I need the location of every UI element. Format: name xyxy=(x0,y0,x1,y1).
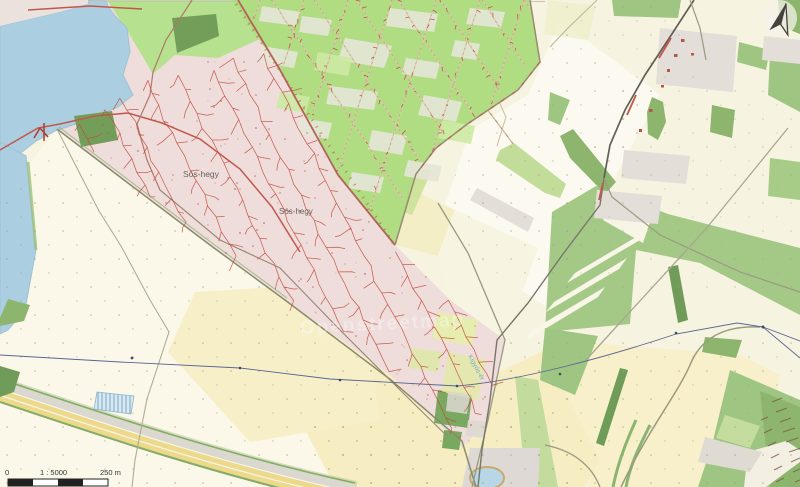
svg-text:Sós-hegy: Sós-hegy xyxy=(183,169,220,179)
svg-text:Sós-hegy: Sós-hegy xyxy=(279,207,313,216)
svg-text:0: 0 xyxy=(5,468,9,477)
svg-text:250 m: 250 m xyxy=(100,468,121,477)
svg-text:1 : 5000: 1 : 5000 xyxy=(40,468,67,477)
